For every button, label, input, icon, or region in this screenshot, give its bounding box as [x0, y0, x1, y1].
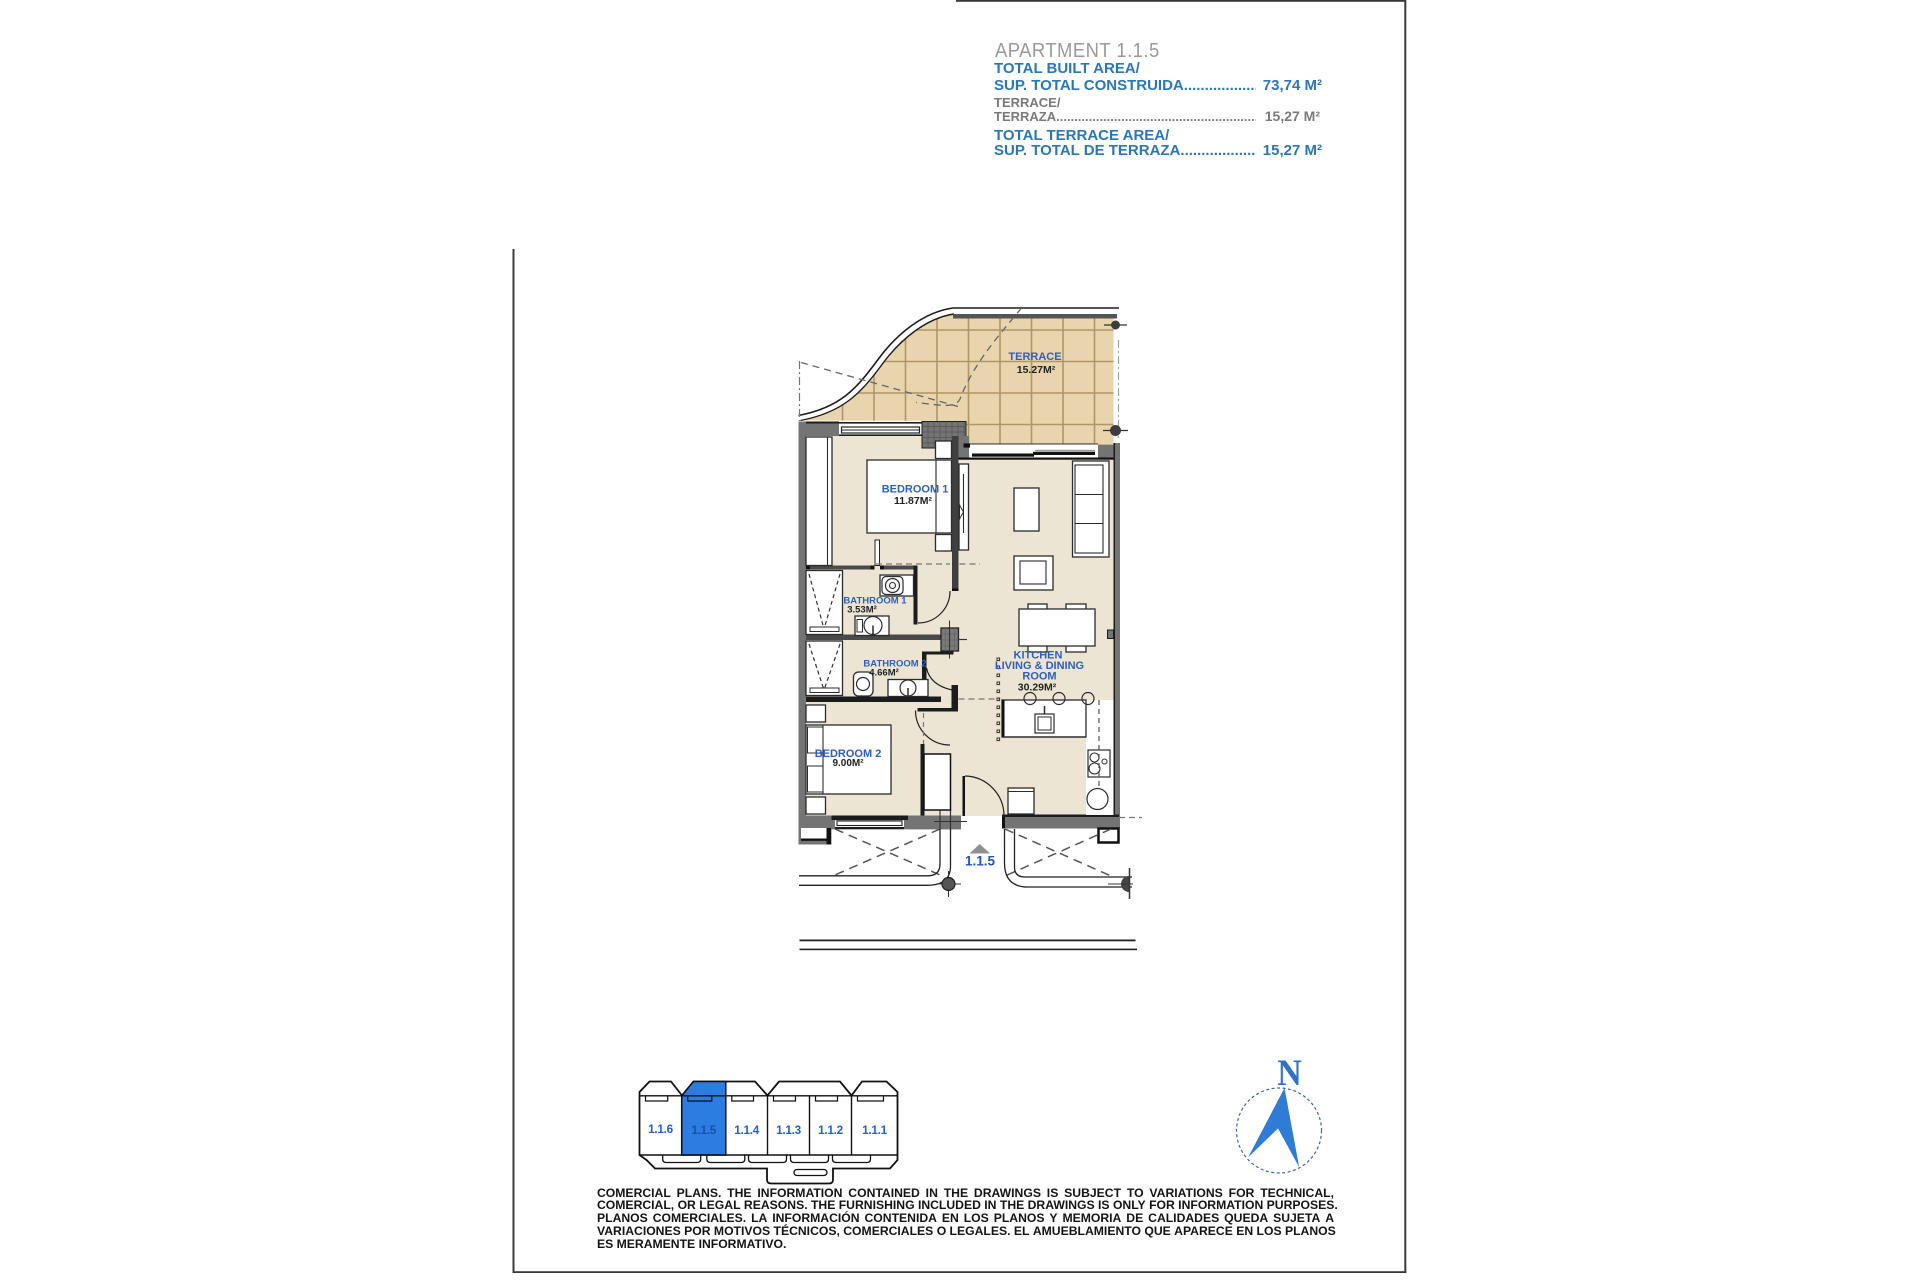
svg-text:1.1.2: 1.1.2	[818, 1123, 843, 1137]
svg-text:9.00M²: 9.00M²	[832, 758, 864, 769]
svg-text:1.1.6: 1.1.6	[648, 1122, 673, 1136]
svg-text:N: N	[1277, 1052, 1302, 1094]
svg-text:15.27M²: 15.27M²	[1017, 364, 1056, 376]
svg-text:BEDROOM 1: BEDROOM 1	[882, 484, 949, 496]
svg-text:3.53M²: 3.53M²	[847, 605, 877, 616]
svg-text:1.1.3: 1.1.3	[776, 1123, 801, 1137]
svg-text:TERRACE: TERRACE	[1008, 351, 1061, 363]
svg-text:4.66M²: 4.66M²	[869, 668, 899, 679]
svg-text:1.1.5: 1.1.5	[691, 1123, 716, 1137]
svg-text:1.1.5: 1.1.5	[965, 854, 996, 869]
svg-text:1.1.1: 1.1.1	[862, 1123, 887, 1137]
svg-text:1.1.4: 1.1.4	[734, 1123, 759, 1137]
svg-text:11.87M²: 11.87M²	[894, 495, 932, 507]
svg-text:30.29M²: 30.29M²	[1018, 682, 1057, 694]
